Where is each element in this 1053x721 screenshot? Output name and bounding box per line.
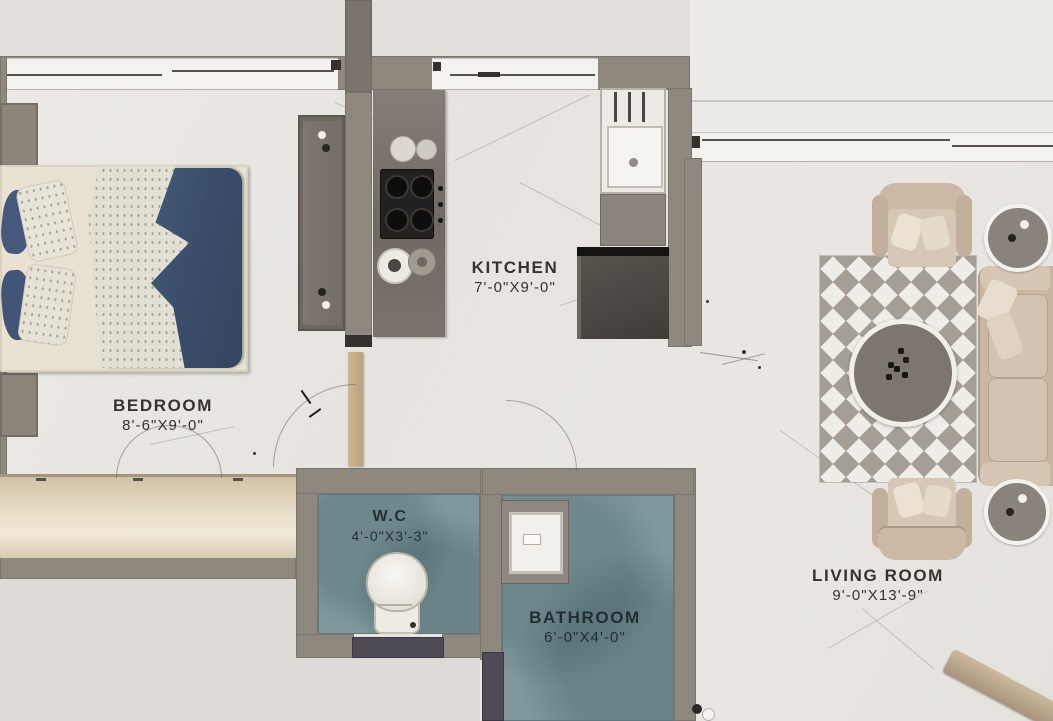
toilet <box>366 552 424 634</box>
room-name: LIVING ROOM <box>812 565 944 586</box>
window-latch <box>478 72 500 77</box>
sofa <box>978 266 1053 486</box>
balcony-edge-line <box>690 100 1053 102</box>
kitchen-label: KITCHEN 7'-0"X9'-0" <box>472 257 559 299</box>
wall-wc-bottom <box>442 634 482 658</box>
stove-knob <box>438 202 443 207</box>
window-end-cap <box>331 60 341 70</box>
stove-burner <box>410 208 434 232</box>
nightstand <box>0 373 38 437</box>
toilet-bowl <box>366 552 428 612</box>
refrigerator <box>577 247 669 339</box>
room-size: 8'-6"X9'-0" <box>113 416 213 436</box>
room-size: 6'-0"X4'-0" <box>529 628 641 648</box>
side-table-top <box>984 204 1052 272</box>
wall-bathroom-top <box>482 468 694 495</box>
marble-vein <box>455 94 590 161</box>
window-sill-line <box>450 74 595 76</box>
exterior-area <box>372 0 690 58</box>
wall-bedroom-bottom <box>0 555 296 579</box>
window-sill-line <box>172 70 334 72</box>
stove-knob <box>438 218 443 223</box>
exterior-area <box>296 658 480 721</box>
kitchen-bowl-center <box>417 257 427 267</box>
room-size: 7'-0"X9'-0" <box>472 278 559 298</box>
room-name: KITCHEN <box>472 257 559 278</box>
sofa-seat-cushion <box>988 378 1048 462</box>
exterior-area <box>690 0 1053 132</box>
floor-object <box>702 708 715 721</box>
dresser-handle <box>36 478 46 481</box>
room-size: 4'-0"X3'-3" <box>351 527 428 546</box>
stove-burner <box>385 175 409 199</box>
marble-speck <box>758 366 761 369</box>
side-table-bottom <box>984 479 1050 545</box>
kitchen-jar <box>390 136 416 162</box>
basin-faucet <box>523 534 541 545</box>
living-room-label: LIVING ROOM 9'-0"X13'-9" <box>812 565 944 607</box>
refrigerator-top-band <box>577 247 669 256</box>
dresser-handle <box>133 478 143 481</box>
side-table-decor <box>1020 220 1029 229</box>
bathroom-door <box>482 652 504 721</box>
kitchen-plate-center <box>388 259 401 272</box>
wall-bedroom-kitchen <box>345 92 372 347</box>
sink-faucet-lines <box>614 92 654 122</box>
toilet-seat-line <box>378 604 412 606</box>
wall-living-left-upper <box>684 158 702 346</box>
room-name: W.C <box>351 507 428 527</box>
armchair-top <box>872 183 972 275</box>
wall-end-cap <box>345 335 372 347</box>
bathroom-sink <box>501 500 567 582</box>
nightstand <box>0 103 38 167</box>
side-table-decor <box>1018 494 1027 503</box>
window-sill-line <box>702 139 950 141</box>
exterior-area <box>0 0 345 58</box>
side-table-decor <box>1006 508 1014 516</box>
wall-living-left-lower <box>674 468 696 721</box>
room-name: BATHROOM <box>529 607 641 628</box>
wall-wc-bathroom <box>480 468 502 660</box>
wardrobe-handle <box>318 288 326 296</box>
bathroom-label: BATHROOM 6'-0"X4'-0" <box>529 607 641 649</box>
dresser-handle <box>233 478 243 481</box>
wall-pillar <box>345 0 372 92</box>
sink-basin <box>607 126 663 188</box>
wardrobe-handle <box>318 131 326 139</box>
marble-speck <box>706 300 709 303</box>
armchair-armrest <box>956 195 972 257</box>
exterior-area <box>0 578 296 721</box>
stove-burner <box>385 208 409 232</box>
floor-plan-canvas: BEDROOM 8'-6"X9'-0" KITCHEN 7'-0"X9'-0" … <box>0 0 1053 721</box>
wall-wc-bottom <box>296 634 354 658</box>
toilet-flush-button <box>410 622 416 628</box>
kitchen-jar <box>416 139 437 160</box>
armchair-bottom <box>872 474 972 562</box>
dresser <box>0 474 296 558</box>
armchair-armrest <box>872 195 888 257</box>
coffee-table-decor <box>888 362 894 368</box>
side-table-decor <box>1008 234 1016 242</box>
kitchen-lower-counter <box>600 194 666 246</box>
room-name: BEDROOM <box>113 395 213 416</box>
armchair-back <box>878 526 966 560</box>
marble-vein <box>862 608 935 670</box>
armchair-cushion <box>922 484 953 518</box>
marble-speck <box>253 452 256 455</box>
stove-burner <box>410 175 434 199</box>
wc-label: W.C 4'-0"X3'-3" <box>351 507 428 546</box>
room-size: 9'-0"X13'-9" <box>812 586 944 606</box>
marble-speck <box>742 350 746 354</box>
living-room-window <box>688 132 1053 162</box>
wall-wc-left <box>296 468 318 658</box>
floor-object <box>692 704 702 714</box>
window-end-cap <box>433 62 441 71</box>
corner-bench <box>942 649 1053 721</box>
wardrobe-handle <box>322 144 330 152</box>
window-sill-line <box>952 145 1053 147</box>
sink-drain <box>629 158 638 167</box>
wardrobe-handle <box>322 301 330 309</box>
wc-door <box>352 637 444 658</box>
wall-wc-top <box>296 468 482 494</box>
window-sill-line <box>4 74 162 76</box>
coffee-table <box>849 319 957 427</box>
bedroom-label: BEDROOM 8'-6"X9'-0" <box>113 395 213 437</box>
stove-knob <box>438 186 443 191</box>
